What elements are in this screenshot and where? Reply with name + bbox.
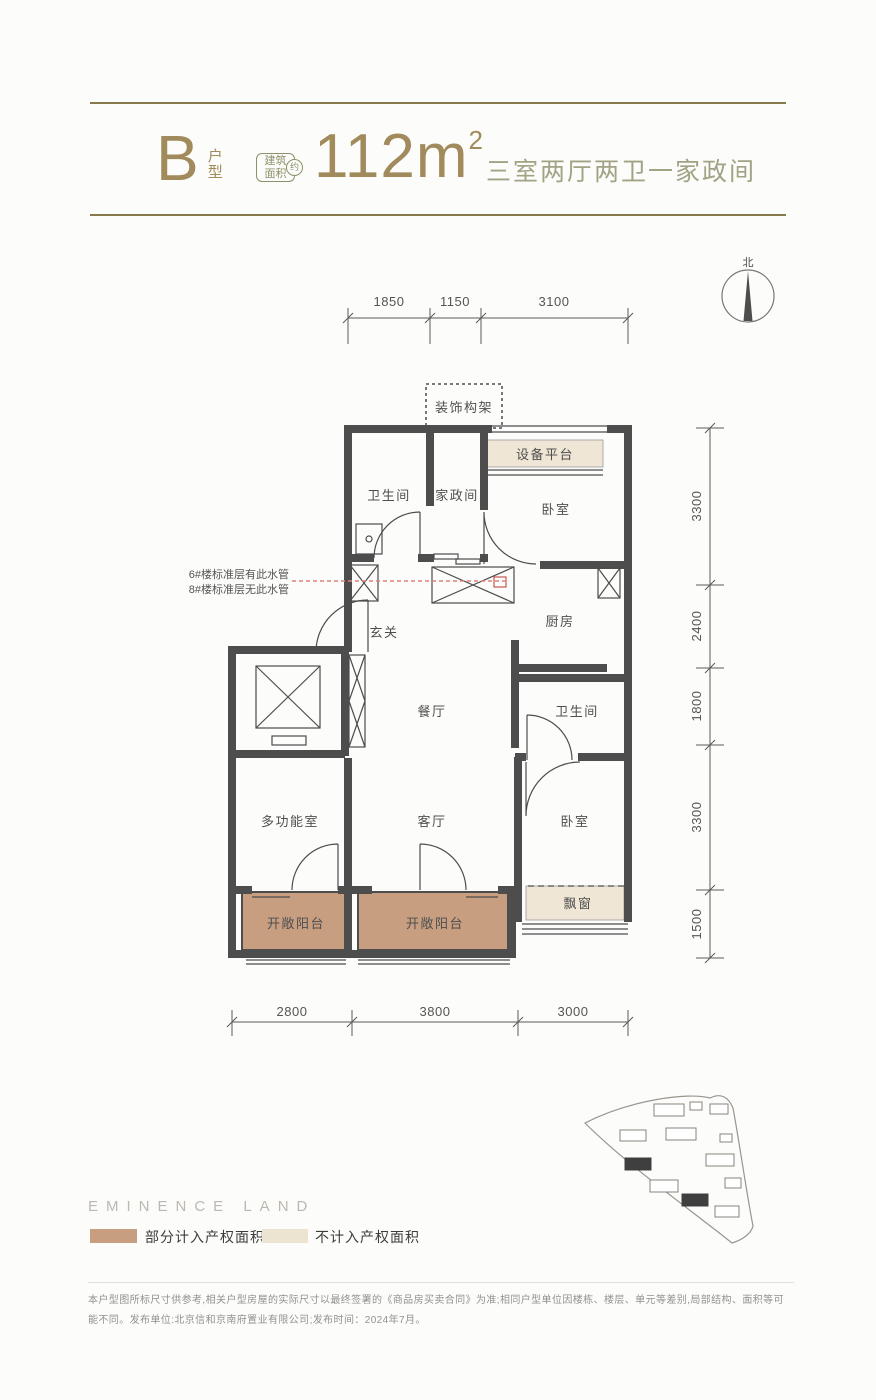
dim-top-0: 1850: [374, 294, 405, 309]
area-number: 112m: [314, 122, 469, 191]
legend-swatch-excluded: [262, 1229, 308, 1243]
room-label-bedroom-top: 卧室: [541, 502, 570, 517]
dimension-bottom: 2800 3800 3000: [227, 1004, 633, 1036]
dim-bottom-0: 2800: [277, 1004, 308, 1019]
pipe-note-line2: 8#楼标准层无此水管: [189, 582, 289, 596]
disclaimer-text: 本户型图所标尺寸供参考,相关户型房屋的实际尺寸以最终签署的《商品房买卖合同》为准…: [88, 1282, 794, 1330]
room-label-balcony-left: 开敞阳台: [267, 916, 325, 931]
legend-label-partial: 部分计入产权面积: [145, 1227, 265, 1247]
brand-wordmark: EMINENCE LAND: [88, 1198, 315, 1215]
area-value: 112m2: [314, 126, 484, 188]
dim-right-0: 3300: [689, 491, 704, 522]
dimension-top: 1850 1150 3100: [343, 294, 633, 344]
dim-bottom-2: 3000: [558, 1004, 589, 1019]
layout-summary: 三室两厅两卫一家政间: [486, 152, 756, 188]
room-label-multi-room: 多功能室: [261, 814, 319, 829]
header-top-rule: [90, 102, 786, 104]
dim-top-1: 1150: [440, 294, 470, 309]
pipe-note-line1: 6#楼标准层有此水管: [189, 567, 289, 581]
compass-north-label: 北: [743, 256, 754, 269]
decorative-frame: 装饰构架: [426, 384, 502, 428]
compass: 北: [722, 256, 774, 322]
walls: [232, 425, 632, 958]
dimension-right: 3300 2400 1800 3300 1500: [689, 423, 724, 963]
dim-right-1: 2400: [689, 611, 704, 642]
site-buildings: [620, 1102, 741, 1217]
room-label-bath-top: 卫生间: [367, 488, 411, 503]
dim-right-3: 3300: [689, 802, 704, 833]
room-label-dining: 餐厅: [417, 704, 446, 719]
dim-right-2: 1800: [689, 691, 704, 722]
floor-plan: 北 装饰构架: [0, 240, 876, 1060]
room-label-balcony-center: 开敞阳台: [406, 916, 464, 931]
window-lines: [246, 426, 628, 964]
floorplan-page: B 户型 建筑 面积 约 112m2 三室两厅两卫一家政间 北 装饰构架: [0, 0, 876, 1400]
room-label-kitchen: 厨房: [545, 614, 574, 629]
dim-right-4: 1500: [689, 909, 704, 940]
area-superscript: 2: [469, 125, 484, 155]
room-label-foyer: 玄关: [369, 625, 398, 640]
approx-mark: 约: [286, 159, 303, 176]
unit-letter: B: [156, 126, 199, 190]
unit-type-label: 户型: [204, 148, 223, 180]
pipe-shaft: [349, 655, 365, 747]
header-bottom-rule: [90, 214, 786, 216]
room-label-bath-right: 卫生间: [555, 704, 599, 719]
room-label-bay-window: 飘窗: [563, 896, 592, 911]
built-area-badge: 建筑 面积 约: [256, 153, 295, 182]
site-plan: [570, 1078, 805, 1250]
legend-swatch-partial: [90, 1229, 137, 1243]
room-label-bedroom-bottom: 卧室: [560, 814, 589, 829]
elevator: [256, 666, 320, 745]
room-label-living: 客厅: [417, 814, 446, 829]
unit-type-text: 户型: [204, 148, 223, 180]
legend-label-excluded: 不计入产权面积: [315, 1227, 420, 1247]
room-label-decor-frame: 装饰构架: [435, 400, 493, 415]
site-boundary: [585, 1096, 753, 1243]
dim-bottom-1: 3800: [420, 1004, 451, 1019]
room-label-equip-platform: 设备平台: [516, 447, 574, 462]
dim-top-2: 3100: [539, 294, 570, 309]
highlighted-building-2: [682, 1194, 708, 1206]
highlighted-building-1: [625, 1158, 651, 1170]
room-label-housekeeping: 家政间: [435, 488, 479, 503]
